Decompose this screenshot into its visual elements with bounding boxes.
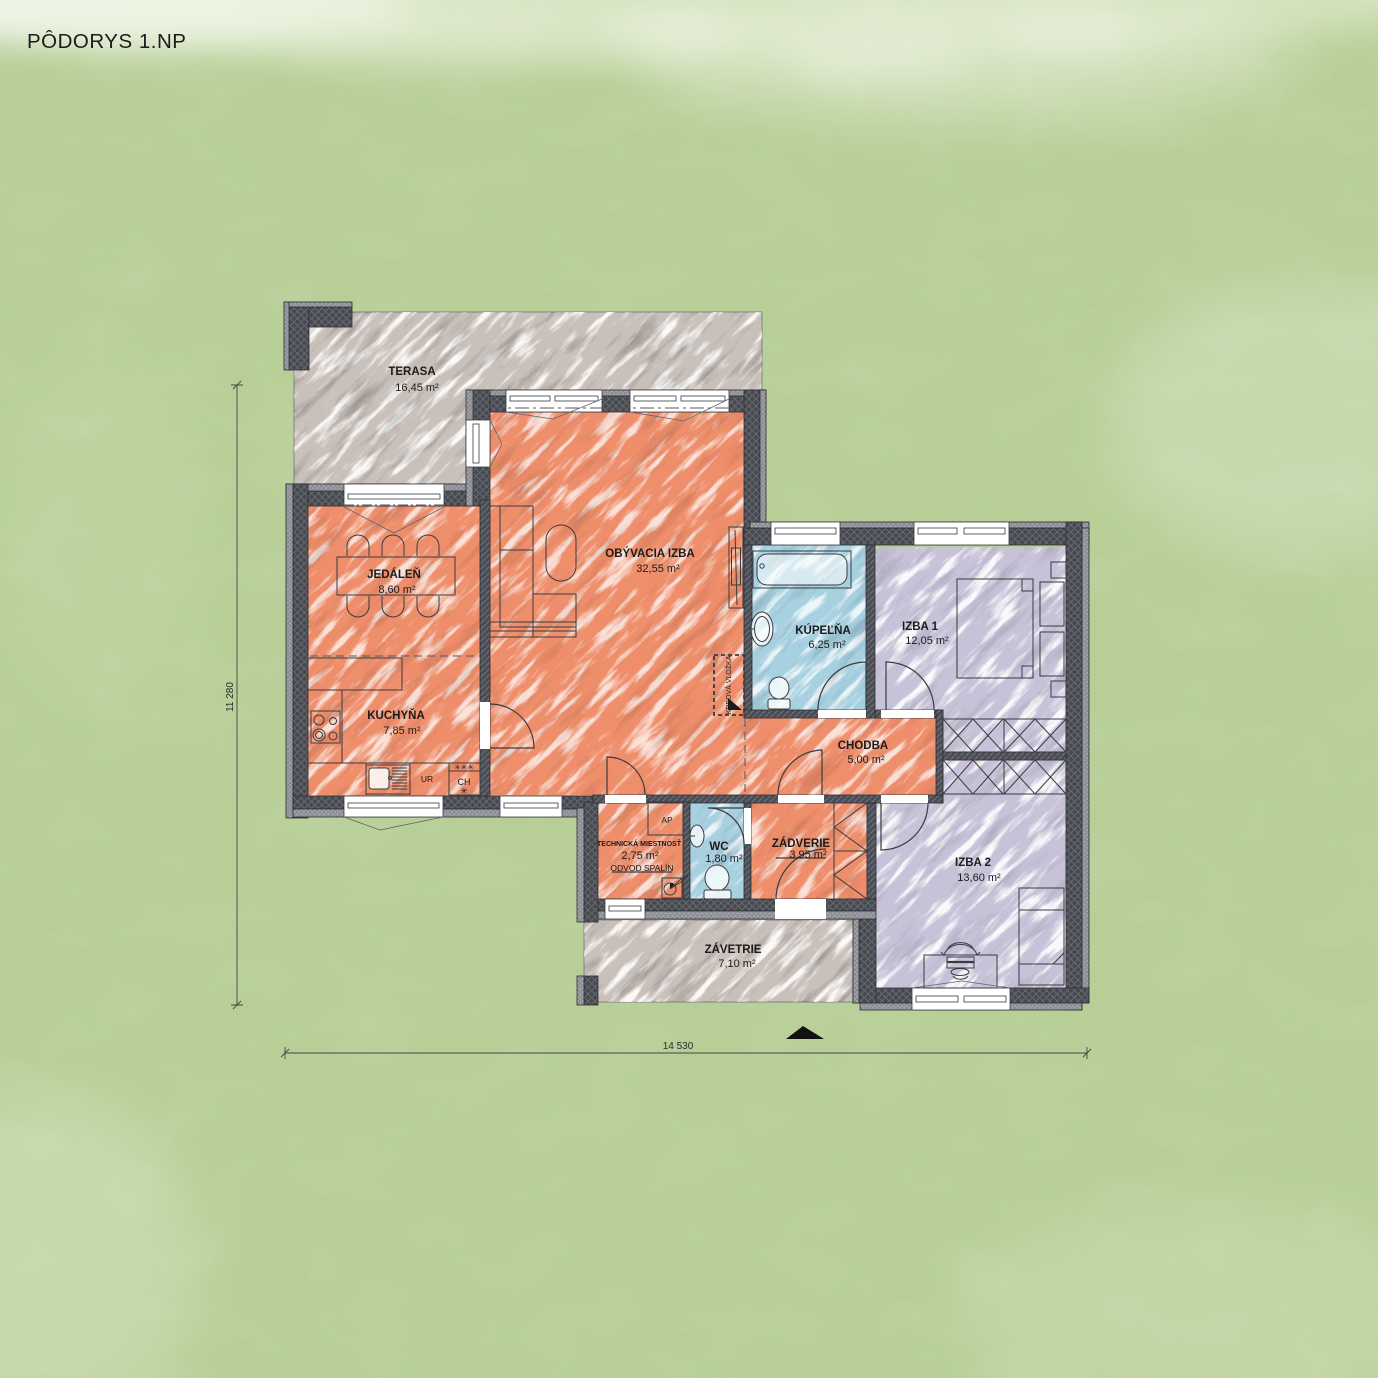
svg-text:TECHNICKÁ MIESTNOSŤ: TECHNICKÁ MIESTNOSŤ <box>597 839 682 848</box>
svg-text:CHODBA: CHODBA <box>838 740 888 752</box>
svg-text:ZÁVETRIE: ZÁVETRIE <box>705 943 762 956</box>
svg-text:OBÝVACIA IZBA: OBÝVACIA IZBA <box>605 547 694 560</box>
svg-text:KÚPEĽŇA: KÚPEĽŇA <box>795 624 851 637</box>
svg-text:11 280: 11 280 <box>225 682 236 712</box>
svg-text:6,25 m²: 6,25 m² <box>808 639 846 651</box>
svg-text:5,00 m²: 5,00 m² <box>847 754 885 766</box>
svg-text:IZBA 1: IZBA 1 <box>902 621 939 633</box>
svg-text:7,10 m²: 7,10 m² <box>718 958 756 970</box>
svg-text:2,75 m²: 2,75 m² <box>621 850 659 862</box>
svg-text:IZBA 2: IZBA 2 <box>955 857 991 869</box>
svg-text:1,80 m²: 1,80 m² <box>705 853 743 865</box>
svg-text:UR: UR <box>421 774 433 784</box>
svg-text:WC: WC <box>709 841 728 853</box>
svg-text:JEDÁLEŇ: JEDÁLEŇ <box>367 568 421 581</box>
svg-text:14 530: 14 530 <box>663 1041 694 1052</box>
svg-text:TERASA: TERASA <box>388 366 435 378</box>
svg-text:KUCHYŇA: KUCHYŇA <box>367 709 425 722</box>
svg-text:AP: AP <box>661 815 673 825</box>
svg-text:KRBOVÁ VLOŽKA: KRBOVÁ VLOŽKA <box>724 655 733 714</box>
svg-text:13,60 m²: 13,60 m² <box>957 872 1001 884</box>
svg-text:7,85 m²: 7,85 m² <box>383 725 421 737</box>
svg-text:✳: ✳ <box>460 786 468 796</box>
svg-text:ODVOD SPALÍN: ODVOD SPALÍN <box>610 863 673 873</box>
svg-text:✳✳✳: ✳✳✳ <box>454 763 474 772</box>
svg-text:12,05 m²: 12,05 m² <box>905 635 949 647</box>
svg-text:32,55 m²: 32,55 m² <box>636 563 680 575</box>
svg-text:16,45 m²: 16,45 m² <box>395 382 439 394</box>
svg-text:3,95 m²: 3,95 m² <box>789 849 827 861</box>
svg-text:PÔDORYS 1.NP: PÔDORYS 1.NP <box>27 30 186 53</box>
svg-text:8,60 m²: 8,60 m² <box>378 584 416 596</box>
